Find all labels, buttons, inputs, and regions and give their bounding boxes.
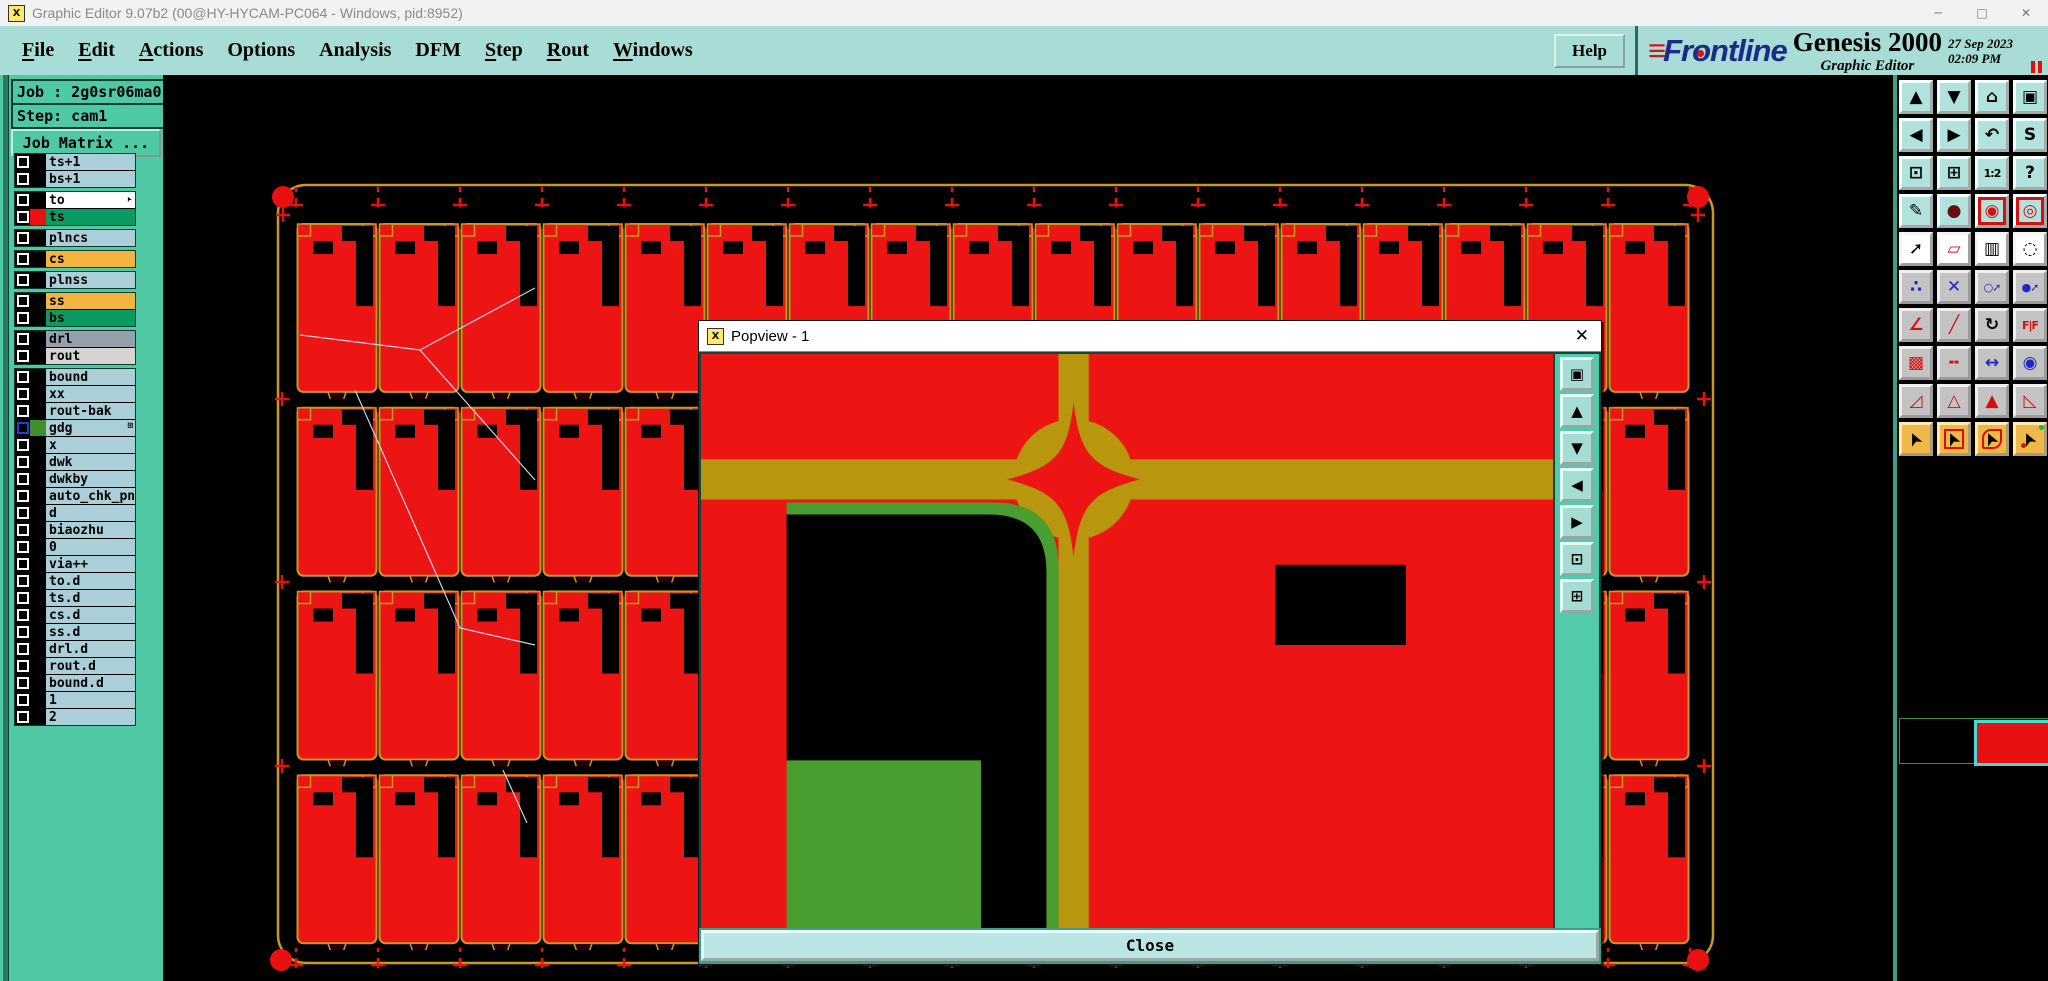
ruler-measure-icon: ▥ — [1984, 241, 2000, 258]
layer-visibility-checkbox[interactable] — [15, 209, 30, 225]
layer-color-swatch[interactable] — [30, 171, 46, 187]
layer-color-swatch[interactable] — [30, 573, 46, 589]
window-title: Graphic Editor 9.07b2 (00@HY-HYCAM-PC064… — [32, 5, 463, 21]
pan-down-button[interactable]: ▼ — [1937, 80, 1971, 114]
net-points-icon: ∴ — [1910, 279, 1922, 296]
move-pad-icon: ➚ — [1909, 241, 1923, 258]
layer-color-swatch[interactable] — [30, 709, 46, 725]
menu-dfm[interactable]: DFM — [415, 39, 461, 62]
layer-row-dwkby[interactable]: dwkby — [15, 471, 135, 488]
triangle-tool-2-button[interactable]: △ — [1937, 384, 1971, 418]
layer-color-swatch[interactable] — [30, 454, 46, 470]
close-button[interactable]: ✕ — [2004, 0, 2048, 26]
popview-zoom-in-button[interactable]: ⊡ — [1560, 542, 1594, 576]
route-from-via-icon: ○➚ — [1984, 282, 2001, 293]
toolbar-row: ➚▱▥◌ — [1899, 232, 2047, 266]
popview-pan-up-icon: ▲ — [1571, 402, 1583, 420]
move-pad-button[interactable]: ➚ — [1899, 232, 1933, 266]
layer-visibility-checkbox[interactable] — [15, 386, 30, 402]
route-from-pad-button[interactable]: ●➚ — [2013, 270, 2047, 304]
layer-name-label: ss — [46, 293, 135, 309]
layer-name-label: 1 — [46, 692, 135, 708]
pan-up-icon: ▲ — [1909, 89, 1922, 106]
layer-name-label: ss.d — [46, 624, 135, 640]
layer-row-rout.d[interactable]: rout.d — [15, 658, 135, 675]
layer-visibility-checkbox[interactable] — [15, 454, 30, 470]
layer-color-swatch[interactable] — [30, 293, 46, 309]
layer-color-swatch[interactable] — [30, 437, 46, 453]
popview-close-x-icon[interactable]: ✕ — [1575, 326, 1589, 346]
delete-marker-button[interactable]: ✕ — [1937, 270, 1971, 304]
trace-pad-icon: ● — [1947, 203, 1962, 220]
layer-name-label: via++ — [46, 556, 135, 572]
layer-group: plnss — [14, 271, 136, 289]
datetime: 27 Sep 2023 02:09 PM — [1948, 36, 2013, 66]
popview-pan-down-button[interactable]: ▼ — [1560, 431, 1594, 465]
pan-left-button[interactable]: ◀ — [1899, 118, 1933, 152]
layer-group: cs — [14, 250, 136, 268]
delete-marker-icon: ✕ — [1947, 279, 1961, 296]
layer-row-ts+1[interactable]: ts+1 — [15, 154, 135, 171]
layer-row-d[interactable]: d — [15, 505, 135, 522]
layer-color-swatch[interactable] — [30, 209, 46, 225]
layer-visibility-checkbox[interactable] — [15, 192, 30, 208]
s-route-button[interactable]: S — [2013, 118, 2047, 152]
layer-name-label: cs.d — [46, 607, 135, 623]
layer-attr-icon: ⊞ — [128, 421, 133, 431]
menu-analysis[interactable]: Analysis — [319, 39, 391, 62]
layer-list: ts+1bs+1to➤tsplncscsplnssssbsdrlroutboun… — [14, 153, 136, 729]
layer-name-label: rout — [46, 348, 135, 364]
layer-row-dwk[interactable]: dwk — [15, 454, 135, 471]
layer-row-auto_chk_pnl[interactable]: auto_chk_pnl — [15, 488, 135, 505]
zoom-in-icon: ⊞ — [1947, 165, 1961, 182]
ruler-measure-button[interactable]: ▥ — [1975, 232, 2009, 266]
menu-items: FileEditActionsOptionsAnalysisDFMStepRou… — [0, 39, 717, 62]
layer-visibility-checkbox[interactable] — [15, 369, 30, 385]
layer-visibility-checkbox[interactable] — [15, 437, 30, 453]
trace-pad-button[interactable]: ● — [1937, 194, 1971, 228]
job-label: Job : 2g0sr06ma0 — [13, 81, 163, 105]
layer-name-label: auto_chk_pnl — [46, 488, 135, 504]
layer-name-label: dwkby — [46, 471, 135, 487]
overview-thumbnail[interactable] — [1899, 718, 2048, 764]
layer-visibility-checkbox[interactable] — [15, 331, 30, 347]
layer-row-gdg[interactable]: gdg⊞ — [15, 420, 135, 437]
popview-window[interactable]: X Popview - 1 ✕ — [698, 320, 1602, 965]
menu-edit[interactable]: Edit — [78, 39, 115, 62]
layer-name-label: ts.d — [46, 590, 135, 606]
scale-1-2-icon: 1:2 — [1984, 168, 2001, 179]
layer-name-label: drl — [46, 331, 135, 347]
select-cursor-button[interactable]: ➤ — [1899, 422, 1933, 456]
layer-row-ts[interactable]: ts — [15, 209, 135, 225]
toolbar-row: ▩╍↔◉ — [1899, 346, 2047, 380]
layer-color-swatch[interactable] — [30, 471, 46, 487]
popview-pan-left-button[interactable]: ◀ — [1560, 468, 1594, 502]
menu-options[interactable]: Options — [227, 39, 295, 62]
zoom-out-icon: ⊡ — [1909, 165, 1923, 182]
layer-visibility-checkbox[interactable] — [15, 230, 30, 246]
layer-color-swatch[interactable] — [30, 658, 46, 674]
layer-visibility-checkbox[interactable] — [15, 272, 30, 288]
select-net-cursor-button[interactable]: ➤ — [2013, 422, 2047, 456]
active-layer-cursor-icon: ➤ — [124, 193, 135, 203]
toolbar-row: ➤➤➤➤ — [1899, 422, 2047, 456]
net-points-button[interactable]: ∴ — [1899, 270, 1933, 304]
toolbar-row: ✎●◉◎ — [1899, 194, 2047, 228]
toolbar-row: ◿△▲◺ — [1899, 384, 2047, 418]
popview-toolstrip: ▣▲▼◀▶⊡⊞ — [1553, 354, 1599, 928]
layer-color-swatch[interactable] — [30, 420, 46, 436]
polygon-select-button[interactable]: ▱ — [1937, 232, 1971, 266]
zoom-out-button[interactable]: ⊡ — [1899, 156, 1933, 190]
menu-file[interactable]: File — [22, 39, 54, 62]
popview-window-select-button[interactable]: ▣ — [1560, 357, 1594, 391]
popview-zoom-in-icon: ⊡ — [1571, 550, 1584, 568]
layer-color-swatch[interactable] — [30, 641, 46, 657]
popview-pan-left-icon: ◀ — [1571, 476, 1583, 494]
layer-color-swatch[interactable] — [30, 251, 46, 267]
layer-row-1[interactable]: 1 — [15, 692, 135, 709]
layer-group: plncs — [14, 229, 136, 247]
layer-color-swatch[interactable] — [30, 348, 46, 364]
select-poly-cursor-icon: ➤ — [1981, 428, 2004, 449]
layer-name-label: to➤ — [46, 192, 135, 208]
copy-pad-icon: ▩ — [1908, 355, 1924, 372]
date-text: 27 Sep 2023 — [1948, 36, 2013, 51]
angle-measure-icon: ∠ — [1908, 317, 1923, 334]
layer-name-label: drl.d — [46, 641, 135, 657]
mirror-ff-button[interactable]: F|F — [2013, 308, 2047, 342]
thermal-pad-button[interactable]: ◌ — [2013, 232, 2047, 266]
layer-row-cs[interactable]: cs — [15, 251, 135, 267]
toolbar-grid: ▲▼⌂▣◀▶↶S⊡⊞1:2?✎●◉◎➚▱▥◌∴✕○➚●➚∠╱↻F|F▩╍↔◉◿△… — [1899, 80, 2047, 456]
layer-group: boundxxrout-bakgdg⊞xdwkdwkbyauto_chk_pnl… — [14, 368, 136, 726]
layer-visibility-checkbox[interactable] — [15, 624, 30, 640]
select-poly-cursor-button[interactable]: ➤ — [1975, 422, 2009, 456]
rotate-button[interactable]: ↻ — [1975, 308, 2009, 342]
layer-row-bs[interactable]: bs — [15, 310, 135, 326]
route-from-pad-icon: ●➚ — [2022, 282, 2039, 293]
popview-pan-up-button[interactable]: ▲ — [1560, 394, 1594, 428]
layer-row-to[interactable]: to➤ — [15, 192, 135, 209]
overlap-circles-button[interactable]: ◉ — [2013, 346, 2047, 380]
netlist-compare-button[interactable]: ◎ — [2013, 194, 2047, 228]
layer-row-ss.d[interactable]: ss.d — [15, 624, 135, 641]
stretch-line-button[interactable]: ╍ — [1937, 346, 1971, 380]
help-query-button[interactable]: ? — [2013, 156, 2047, 190]
brand-panel: ≡Frontline Genesis 2000 Graphic Editor 2… — [1635, 26, 2048, 75]
layer-name-label: bs+1 — [46, 171, 135, 187]
layer-visibility-checkbox[interactable] — [15, 641, 30, 657]
popview-window-select-icon: ▣ — [1570, 365, 1584, 383]
toolbar-row: ∠╱↻F|F — [1899, 308, 2047, 342]
popview-zoom-out-icon: ⊞ — [1571, 587, 1584, 605]
distance-measure-icon: ↔ — [1985, 355, 1999, 372]
select-net-cursor-icon: ➤ — [2019, 428, 2042, 449]
layer-name-label: x — [46, 437, 135, 453]
layer-row-cs.d[interactable]: cs.d — [15, 607, 135, 624]
layer-row-ss[interactable]: ss — [15, 293, 135, 310]
layer-name-label: bs — [46, 310, 135, 326]
layer-visibility-checkbox[interactable] — [15, 573, 30, 589]
netlist-check-icon: ◉ — [1985, 203, 2000, 220]
layer-name-label: biaozhu — [46, 522, 135, 538]
layer-color-swatch[interactable] — [30, 488, 46, 504]
scale-1-2-button[interactable]: 1:2 — [1975, 156, 2009, 190]
layer-visibility-checkbox[interactable] — [15, 154, 30, 170]
time-text: 02:09 PM — [1948, 51, 2013, 66]
toolbar-row: ⊡⊞1:2? — [1899, 156, 2047, 190]
layer-color-swatch[interactable] — [30, 692, 46, 708]
menu-rout[interactable]: Rout — [547, 39, 589, 62]
select-frame-cursor-icon: ➤ — [1943, 428, 1966, 449]
layer-row-0[interactable]: 0 — [15, 539, 135, 556]
diagonal-line-button[interactable]: ╱ — [1937, 308, 1971, 342]
popview-content[interactable] — [701, 354, 1553, 928]
netlist-compare-icon: ◎ — [2023, 203, 2038, 220]
polygon-select-icon: ▱ — [1947, 241, 1960, 258]
popview-zoom-out-button[interactable]: ⊞ — [1560, 579, 1594, 613]
layer-name-label: to.d — [46, 573, 135, 589]
layer-visibility-checkbox[interactable] — [15, 488, 30, 504]
pan-down-icon: ▼ — [1947, 89, 1960, 106]
layer-row-ts.d[interactable]: ts.d — [15, 590, 135, 607]
pan-left-icon: ◀ — [1909, 127, 1922, 144]
layer-visibility-checkbox[interactable] — [15, 709, 30, 725]
layer-visibility-checkbox[interactable] — [15, 471, 30, 487]
window-xy-icon: ▣ — [2022, 89, 2038, 106]
distance-measure-button[interactable]: ↔ — [1975, 346, 2009, 380]
triangle-tool-4-icon: ◺ — [2023, 393, 2036, 410]
layer-color-swatch[interactable] — [30, 386, 46, 402]
undo-view-icon: ↶ — [1985, 127, 1999, 144]
layer-row-rout[interactable]: rout — [15, 348, 135, 364]
popview-close-button[interactable]: Close — [701, 930, 1599, 961]
maximize-button[interactable]: □ — [1960, 0, 2004, 26]
layer-visibility-checkbox[interactable] — [15, 590, 30, 606]
thermal-pad-icon: ◌ — [2023, 241, 2038, 258]
layer-row-plncs[interactable]: plncs — [15, 230, 135, 246]
layer-name-label: xx — [46, 386, 135, 402]
layer-row-x[interactable]: x — [15, 437, 135, 454]
popview-title: Popview - 1 — [731, 328, 809, 345]
layer-name-label: plnss — [46, 272, 135, 288]
sidebar-scrollbar[interactable] — [3, 75, 9, 981]
layer-row-rout-bak[interactable]: rout-bak — [15, 403, 135, 420]
layer-name-label: ts+1 — [46, 154, 135, 170]
layer-color-swatch[interactable] — [30, 192, 46, 208]
step-label: Step: cam1 — [13, 105, 163, 127]
layer-name-label: 0 — [46, 539, 135, 555]
layer-name-label: gdg⊞ — [46, 420, 135, 436]
layer-color-swatch[interactable] — [30, 310, 46, 326]
layer-row-to.d[interactable]: to.d — [15, 573, 135, 590]
pan-right-button[interactable]: ▶ — [1937, 118, 1971, 152]
home-view-icon: ⌂ — [1986, 89, 1998, 106]
layer-color-swatch[interactable] — [30, 590, 46, 606]
layer-color-swatch[interactable] — [30, 539, 46, 555]
layer-visibility-checkbox[interactable] — [15, 522, 30, 538]
frontline-logo: ≡Frontline — [1648, 33, 1787, 69]
overlap-circles-icon: ◉ — [2023, 355, 2038, 372]
layer-visibility-checkbox[interactable] — [15, 420, 30, 436]
layer-color-swatch[interactable] — [30, 331, 46, 347]
layer-color-swatch[interactable] — [30, 230, 46, 246]
layer-visibility-checkbox[interactable] — [15, 658, 30, 674]
layer-color-swatch[interactable] — [30, 369, 46, 385]
pcb-canvas[interactable]: X Popview - 1 ✕ — [163, 75, 1893, 981]
angle-measure-button[interactable]: ∠ — [1899, 308, 1933, 342]
window-xy-button[interactable]: ▣ — [2013, 80, 2047, 114]
layer-visibility-checkbox[interactable] — [15, 251, 30, 267]
job-info-box: Job : 2g0sr06ma0 Step: cam1 — [11, 79, 165, 129]
layer-row-2[interactable]: 2 — [15, 709, 135, 725]
pause-icon[interactable] — [2031, 61, 2042, 73]
toolbar-row: ∴✕○➚●➚ — [1899, 270, 2047, 304]
layer-name-label: rout-bak — [46, 403, 135, 419]
home-view-button[interactable]: ⌂ — [1975, 80, 2009, 114]
layer-name-label: bound — [46, 369, 135, 385]
layer-group: ts+1bs+1 — [14, 153, 136, 188]
undo-view-button[interactable]: ↶ — [1975, 118, 2009, 152]
layer-visibility-checkbox[interactable] — [15, 293, 30, 309]
layer-row-drl[interactable]: drl — [15, 331, 135, 348]
titlebar: X Graphic Editor 9.07b2 (00@HY-HYCAM-PC0… — [0, 0, 2048, 27]
rotate-icon: ↻ — [1985, 317, 1999, 334]
layer-visibility-checkbox[interactable] — [15, 505, 30, 521]
menu-windows[interactable]: Windows — [613, 39, 693, 62]
layer-visibility-checkbox[interactable] — [15, 310, 30, 326]
layer-name-label: rout.d — [46, 658, 135, 674]
right-toolbar-panel: ▲▼⌂▣◀▶↶S⊡⊞1:2?✎●◉◎➚▱▥◌∴✕○➚●➚∠╱↻F|F▩╍↔◉◿△… — [1893, 75, 2048, 981]
layer-name-label: ts — [46, 209, 135, 225]
copy-pad-button[interactable]: ▩ — [1899, 346, 1933, 380]
pan-right-icon: ▶ — [1947, 127, 1960, 144]
help-query-icon: ? — [2025, 165, 2035, 182]
toolbar-row: ◀▶↶S — [1899, 118, 2047, 152]
layer-row-via++[interactable]: via++ — [15, 556, 135, 573]
layer-row-plnss[interactable]: plnss — [15, 272, 135, 288]
layer-name-label: plncs — [46, 230, 135, 246]
triangle-tool-1-icon: ◿ — [1909, 393, 1922, 410]
triangle-tool-3-button[interactable]: ▲ — [1975, 384, 2009, 418]
layer-visibility-checkbox[interactable] — [15, 556, 30, 572]
edit-tools-button[interactable]: ✎ — [1899, 194, 1933, 228]
mirror-ff-icon: F|F — [2022, 320, 2038, 331]
layer-row-drl.d[interactable]: drl.d — [15, 641, 135, 658]
zoom-in-button[interactable]: ⊞ — [1937, 156, 1971, 190]
layer-color-swatch[interactable] — [30, 154, 46, 170]
triangle-tool-3-icon: ▲ — [1985, 393, 1998, 410]
product-name: Genesis 2000 — [1793, 27, 1942, 58]
layer-group: to➤ts — [14, 191, 136, 226]
layer-color-swatch[interactable] — [30, 556, 46, 572]
netlist-check-button[interactable]: ◉ — [1975, 194, 2009, 228]
layer-row-bs+1[interactable]: bs+1 — [15, 171, 135, 187]
layer-color-swatch[interactable] — [30, 272, 46, 288]
layer-name-label: cs — [46, 251, 135, 267]
minimize-button[interactable]: ─ — [1916, 0, 1960, 26]
popview-titlebar[interactable]: X Popview - 1 ✕ — [699, 321, 1601, 352]
layer-visibility-checkbox[interactable] — [15, 607, 30, 623]
layer-visibility-checkbox[interactable] — [15, 675, 30, 691]
layer-visibility-checkbox[interactable] — [15, 348, 30, 364]
popview-pan-right-button[interactable]: ▶ — [1560, 505, 1594, 539]
layer-color-swatch[interactable] — [30, 522, 46, 538]
popview-closebar: Close — [699, 928, 1601, 964]
overview-selection[interactable] — [1974, 720, 2048, 766]
triangle-tool-1-button[interactable]: ◿ — [1899, 384, 1933, 418]
diagonal-line-icon: ╱ — [1949, 317, 1959, 334]
layer-group: drlrout — [14, 330, 136, 365]
popview-pan-right-icon: ▶ — [1571, 513, 1583, 531]
layer-visibility-checkbox[interactable] — [15, 539, 30, 555]
layer-name-label: dwk — [46, 454, 135, 470]
layer-row-xx[interactable]: xx — [15, 386, 135, 403]
pan-up-button[interactable]: ▲ — [1899, 80, 1933, 114]
layer-name-label: bound.d — [46, 675, 135, 691]
window-controls: ─ □ ✕ — [1916, 0, 2048, 26]
layer-name-label: d — [46, 505, 135, 521]
layer-color-swatch[interactable] — [30, 403, 46, 419]
menu-step[interactable]: Step — [485, 39, 523, 62]
sidebar: Job : 2g0sr06ma0 Step: cam1 Job Matrix .… — [0, 75, 163, 981]
edit-tools-icon: ✎ — [1909, 203, 1923, 220]
menu-actions[interactable]: Actions — [139, 39, 203, 62]
layer-name-label: 2 — [46, 709, 135, 725]
layer-color-swatch[interactable] — [30, 675, 46, 691]
help-menu[interactable]: Help — [1554, 34, 1625, 68]
layer-group: ssbs — [14, 292, 136, 327]
layer-color-swatch[interactable] — [30, 505, 46, 521]
layer-color-swatch[interactable] — [30, 607, 46, 623]
product-edition: Graphic Editor — [1793, 58, 1942, 75]
popview-icon: X — [707, 328, 724, 345]
s-route-icon: S — [2024, 127, 2036, 144]
select-frame-cursor-button[interactable]: ➤ — [1937, 422, 1971, 456]
layer-visibility-checkbox[interactable] — [15, 403, 30, 419]
toolbar-row: ▲▼⌂▣ — [1899, 80, 2047, 114]
route-from-via-button[interactable]: ○➚ — [1975, 270, 2009, 304]
triangle-tool-4-button[interactable]: ◺ — [2013, 384, 2047, 418]
select-cursor-icon: ➤ — [1905, 428, 1928, 449]
app-window: X Graphic Editor 9.07b2 (00@HY-HYCAM-PC0… — [0, 0, 2048, 981]
layer-visibility-checkbox[interactable] — [15, 171, 30, 187]
app-icon: X — [8, 5, 25, 22]
layer-row-bound.d[interactable]: bound.d — [15, 675, 135, 692]
menubar: FileEditActionsOptionsAnalysisDFMStepRou… — [0, 26, 2048, 77]
popview-pan-down-icon: ▼ — [1571, 439, 1583, 457]
layer-row-bound[interactable]: bound — [15, 369, 135, 386]
triangle-tool-2-icon: △ — [1947, 393, 1960, 410]
layer-row-biaozhu[interactable]: biaozhu — [15, 522, 135, 539]
stretch-line-icon: ╍ — [1949, 355, 1959, 372]
layer-visibility-checkbox[interactable] — [15, 692, 30, 708]
popview-zoom-drawing — [701, 354, 1553, 928]
layer-color-swatch[interactable] — [30, 624, 46, 640]
